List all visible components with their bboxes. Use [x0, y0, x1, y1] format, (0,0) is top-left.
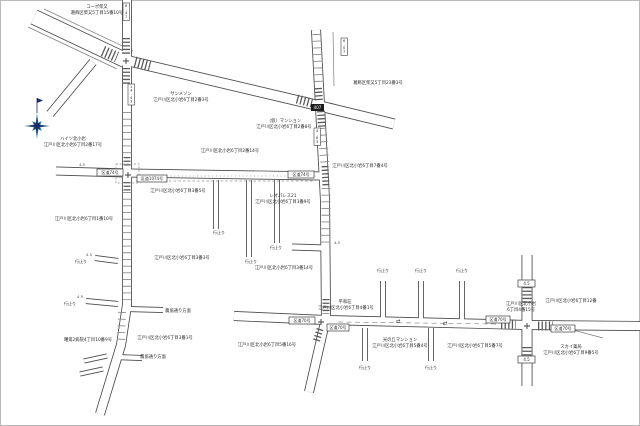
address-label: 江戸川区北小岩6丁目5番7号: [447, 342, 502, 349]
address-label: 江戸川区北小岩6丁目4番1号: [318, 304, 373, 311]
address-label: 江戸川区北小岩6丁目2番17号: [44, 141, 102, 148]
address-label: 江戸川区北小岩6丁目7番4号: [332, 162, 387, 169]
address-label: レオパレス21: [270, 193, 297, 199]
address-label: 江戸川区北小岩: [506, 300, 537, 307]
address-label: 曙第2病院4丁目10番9号: [64, 336, 112, 343]
address-label: 江戸川区北小岩6丁目3番14号: [255, 264, 313, 271]
road-number-sign-label: 区道70号: [489, 316, 506, 322]
side-road: [292, 247, 325, 248]
address-label: コーポ柴又: [86, 3, 108, 10]
side-road: [115, 357, 142, 358]
map-page: 区道74号区道1074号区道74号区道70号区道70号区道70号区道70号4.5…: [0, 0, 640, 426]
dead-end-label: 行止り: [415, 267, 427, 273]
measure-label: 4.5: [86, 252, 93, 257]
address-label: 江戸川区北小岩6丁目3番1号: [137, 334, 192, 341]
road-number-sign-label: 4.5: [523, 281, 530, 286]
route-shield-label: 407: [314, 105, 322, 110]
dead-end-label: 行止り: [75, 258, 87, 264]
road-number-sign-label: 4.5: [523, 357, 530, 362]
address-label: 江戸川区北小岩6丁目9番5号: [543, 349, 598, 356]
address-label: ハイツ北小岩: [60, 135, 86, 142]
address-label: 平和荘: [339, 298, 353, 305]
map-canvas: 区道74号区道1074号区道74号区道70号区道70号区道70号区道70号4.5…: [0, 0, 640, 426]
dead-end-label: 行止り: [213, 229, 225, 235]
address-label: 江戸川区北小岩6丁目3番3号: [154, 254, 209, 261]
traffic-arrow-symbol: ⇄: [443, 321, 448, 327]
address-label: 江戸川区北小岩6丁目2番14号: [201, 147, 259, 154]
address-label: 江戸川区北小岩6丁目5番4号: [372, 342, 427, 349]
road-number-sign-label: 区道70号: [293, 317, 310, 323]
address-label: 光の丘マンション: [383, 336, 417, 343]
address-label: 農協通り方面: [140, 353, 166, 360]
address-label: 農協通り方面: [165, 307, 191, 314]
dead-end-label: 行止り: [425, 364, 437, 370]
address-label: サンメゾン: [170, 91, 191, 97]
traffic-arrow-symbol: ⇄: [396, 319, 401, 325]
road-number-sign-label: 区道74号: [101, 169, 118, 175]
dead-end-label: 行止り: [245, 258, 257, 264]
address-label: 江戸川区北小岩6丁目3番9号: [255, 198, 310, 205]
measure-label: 4.5: [77, 294, 84, 299]
measure-label: 4.5: [79, 162, 86, 167]
address-label: 江戸川区北小岩6丁目3番5号: [150, 187, 205, 194]
road-number-sign-label: 区道74号: [292, 171, 309, 177]
dead-end-label: 行止り: [456, 267, 468, 273]
address-label: 葛飾区柴又5丁目23番3号: [353, 79, 403, 86]
dead-end-label: 行止り: [377, 267, 389, 273]
address-label: 6丁目4番15号: [507, 306, 535, 313]
side-road: [126, 309, 163, 310]
dead-end-stub: [95, 258, 118, 261]
address-label: 葛飾区柴又5丁目15番10号: [71, 9, 123, 16]
middle-horizontal-road: [56, 171, 322, 176]
measure-label: 4.5: [334, 240, 341, 245]
dead-end-label: 行止り: [64, 300, 76, 306]
address-label: 江戸川区北小岩6丁目1番10号: [55, 215, 113, 222]
address-label: スカイ薬局: [560, 343, 581, 350]
dead-end-stub: [86, 301, 118, 304]
address-label: 江戸川区北小岩6丁目12番: [545, 297, 597, 304]
address-label: 江戸川区北小岩6丁目2番8号: [256, 123, 311, 130]
address-label: 江戸川区北小岩6丁目2番3号: [153, 96, 208, 103]
dead-end-label: 行止り: [270, 244, 282, 250]
dead-end-label: 行止り: [359, 364, 371, 370]
address-label: （仮）マンション: [267, 117, 301, 124]
road-number-sign-label: 区道70号: [329, 324, 346, 330]
address-label: 江戸川区北小岩6丁目5番16号: [238, 341, 296, 348]
road-number-sign-label: 区道70号: [554, 325, 571, 331]
road-number-sign-label: 区道1074号: [141, 175, 163, 181]
